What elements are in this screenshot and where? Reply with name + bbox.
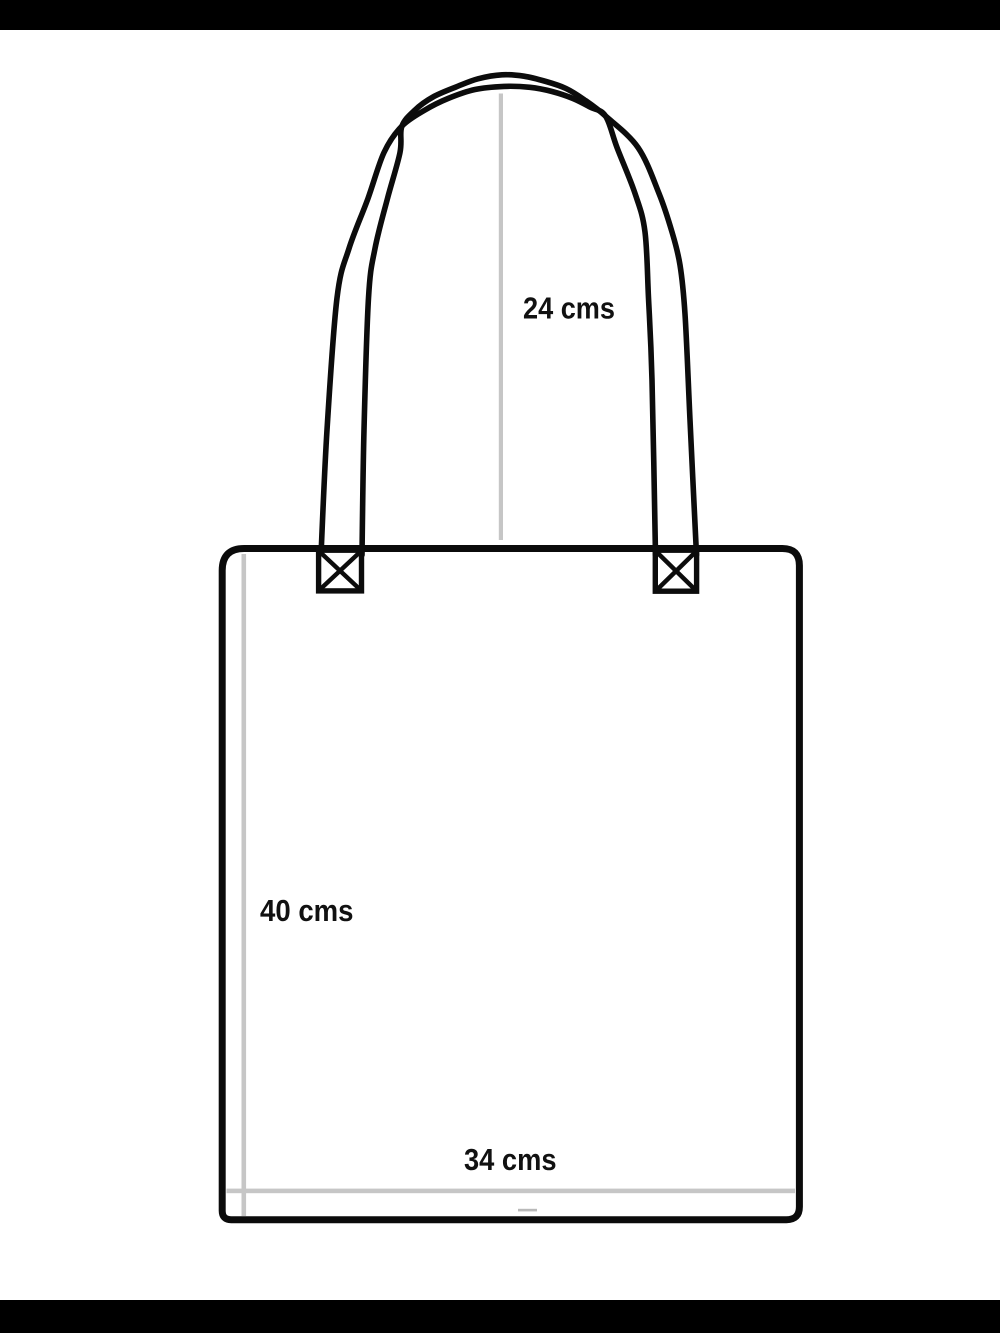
svg-text:34 cms: 34 cms: [464, 1142, 557, 1177]
svg-text:40 cms: 40 cms: [260, 893, 354, 928]
svg-text:24 cms: 24 cms: [523, 291, 615, 326]
